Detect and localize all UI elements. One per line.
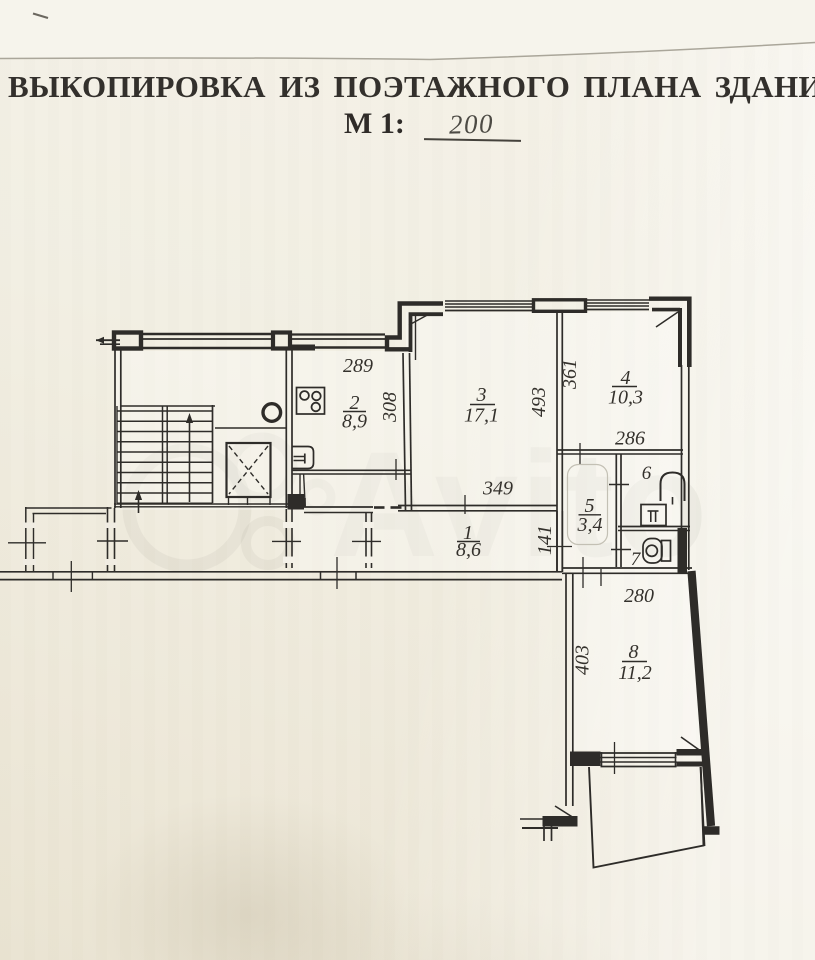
- svg-text:8,6: 8,6: [456, 539, 481, 561]
- svg-text:17,1: 17,1: [464, 405, 499, 427]
- svg-text:361: 361: [559, 359, 581, 390]
- svg-text:141: 141: [534, 525, 556, 555]
- svg-text:289: 289: [343, 355, 373, 377]
- svg-text:11,2: 11,2: [618, 662, 652, 684]
- svg-text:308: 308: [379, 392, 401, 423]
- svg-text:8,9: 8,9: [342, 411, 367, 433]
- svg-text:403: 403: [572, 645, 594, 675]
- svg-text:3: 3: [476, 384, 487, 406]
- svg-text:7: 7: [631, 549, 642, 570]
- svg-text:349: 349: [482, 478, 513, 500]
- svg-text:280: 280: [624, 585, 654, 607]
- svg-text:10,3: 10,3: [608, 387, 643, 409]
- svg-text:286: 286: [615, 428, 645, 450]
- svg-text:6: 6: [642, 463, 652, 484]
- svg-text:3,4: 3,4: [577, 514, 603, 536]
- svg-text:493: 493: [528, 387, 550, 417]
- svg-text:8: 8: [629, 641, 639, 663]
